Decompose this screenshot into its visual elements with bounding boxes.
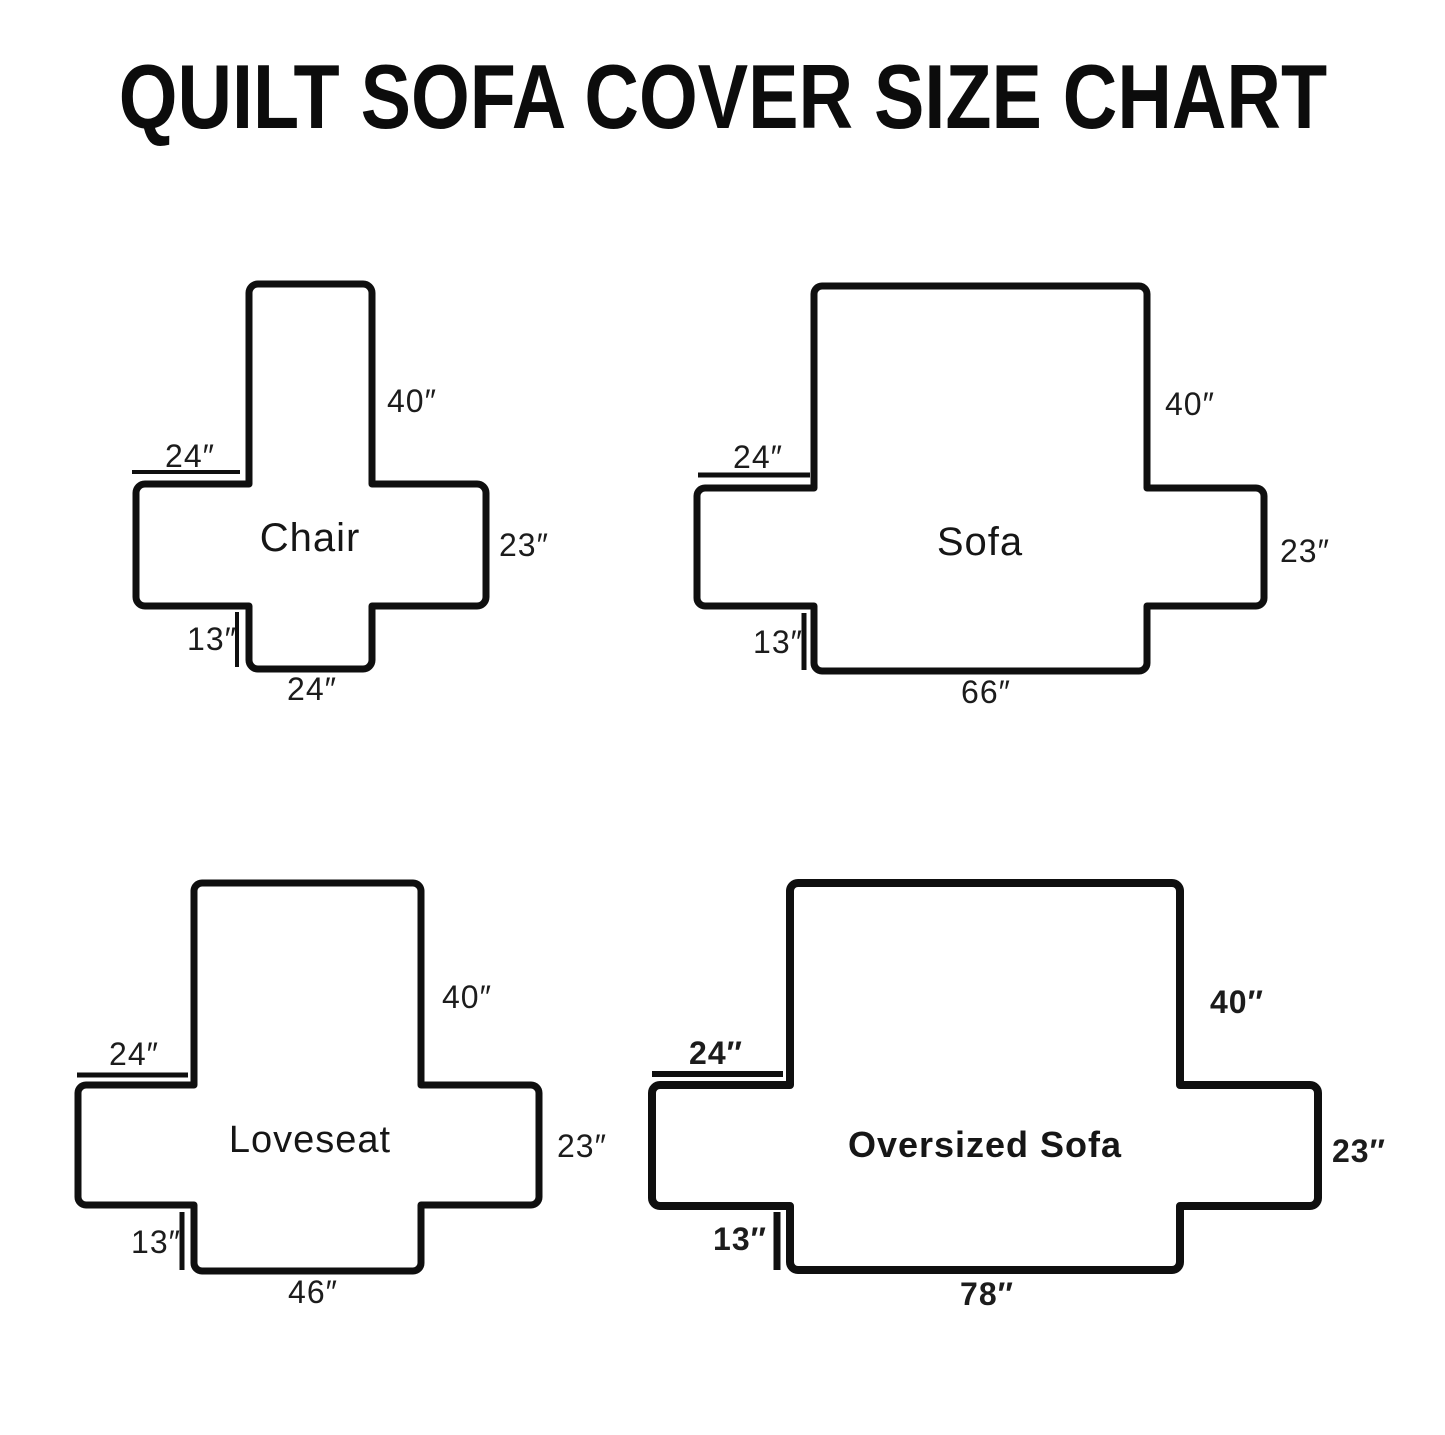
loveseat-seat-width-label: 46″ — [288, 1274, 338, 1310]
size-chart-figure: QUILT SOFA COVER SIZE CHART 40″ 24″ 23″ … — [0, 0, 1445, 1435]
oversized-sofa-diagram: 40″ 24″ 23″ 13″ 78″ Oversized Sofa — [652, 883, 1386, 1312]
loveseat-skirt-height-label: 13″ — [131, 1224, 181, 1260]
sofa-name-label: Sofa — [937, 520, 1023, 564]
sofa-diagram: 40″ 24″ 23″ 13″ 66″ Sofa — [697, 286, 1330, 710]
oversized-sofa-back-height-label: 40″ — [1210, 984, 1264, 1020]
chair-seat-width-label: 24″ — [287, 671, 337, 707]
sofa-outline — [697, 286, 1264, 671]
chair-arm-length-label: 24″ — [165, 438, 215, 474]
sofa-skirt-height-label: 13″ — [753, 624, 803, 660]
oversized-sofa-side-height-label: 23″ — [1332, 1133, 1386, 1169]
sofa-side-height-label: 23″ — [1280, 533, 1330, 569]
oversized-sofa-skirt-height-label: 13″ — [713, 1221, 767, 1257]
chair-side-height-label: 23″ — [499, 527, 549, 563]
sofa-arm-length-label: 24″ — [733, 439, 783, 475]
loveseat-name-label: Loveseat — [229, 1119, 391, 1161]
sofa-seat-width-label: 66″ — [961, 674, 1011, 710]
oversized-sofa-arm-length-label: 24″ — [689, 1035, 743, 1071]
chair-name-label: Chair — [260, 516, 361, 560]
chair-diagram: 40″ 24″ 23″ 13″ 24″ Chair — [132, 284, 549, 707]
oversized-sofa-name-label: Oversized Sofa — [848, 1124, 1122, 1165]
chair-skirt-height-label: 13″ — [187, 621, 237, 657]
loveseat-arm-length-label: 24″ — [109, 1036, 159, 1072]
loveseat-back-height-label: 40″ — [442, 979, 492, 1015]
chair-outline — [136, 284, 486, 669]
sofa-back-height-label: 40″ — [1165, 386, 1215, 422]
loveseat-diagram: 40″ 24″ 23″ 13″ 46″ Loveseat — [77, 883, 607, 1310]
chair-back-height-label: 40″ — [387, 383, 437, 419]
loveseat-side-height-label: 23″ — [557, 1128, 607, 1164]
page-title: QUILT SOFA COVER SIZE CHART — [119, 45, 1327, 147]
size-chart-page: QUILT SOFA COVER SIZE CHART 40″ 24″ 23″ … — [0, 0, 1445, 1435]
title-group: QUILT SOFA COVER SIZE CHART — [119, 45, 1327, 147]
oversized-sofa-seat-width-label: 78″ — [960, 1276, 1014, 1312]
